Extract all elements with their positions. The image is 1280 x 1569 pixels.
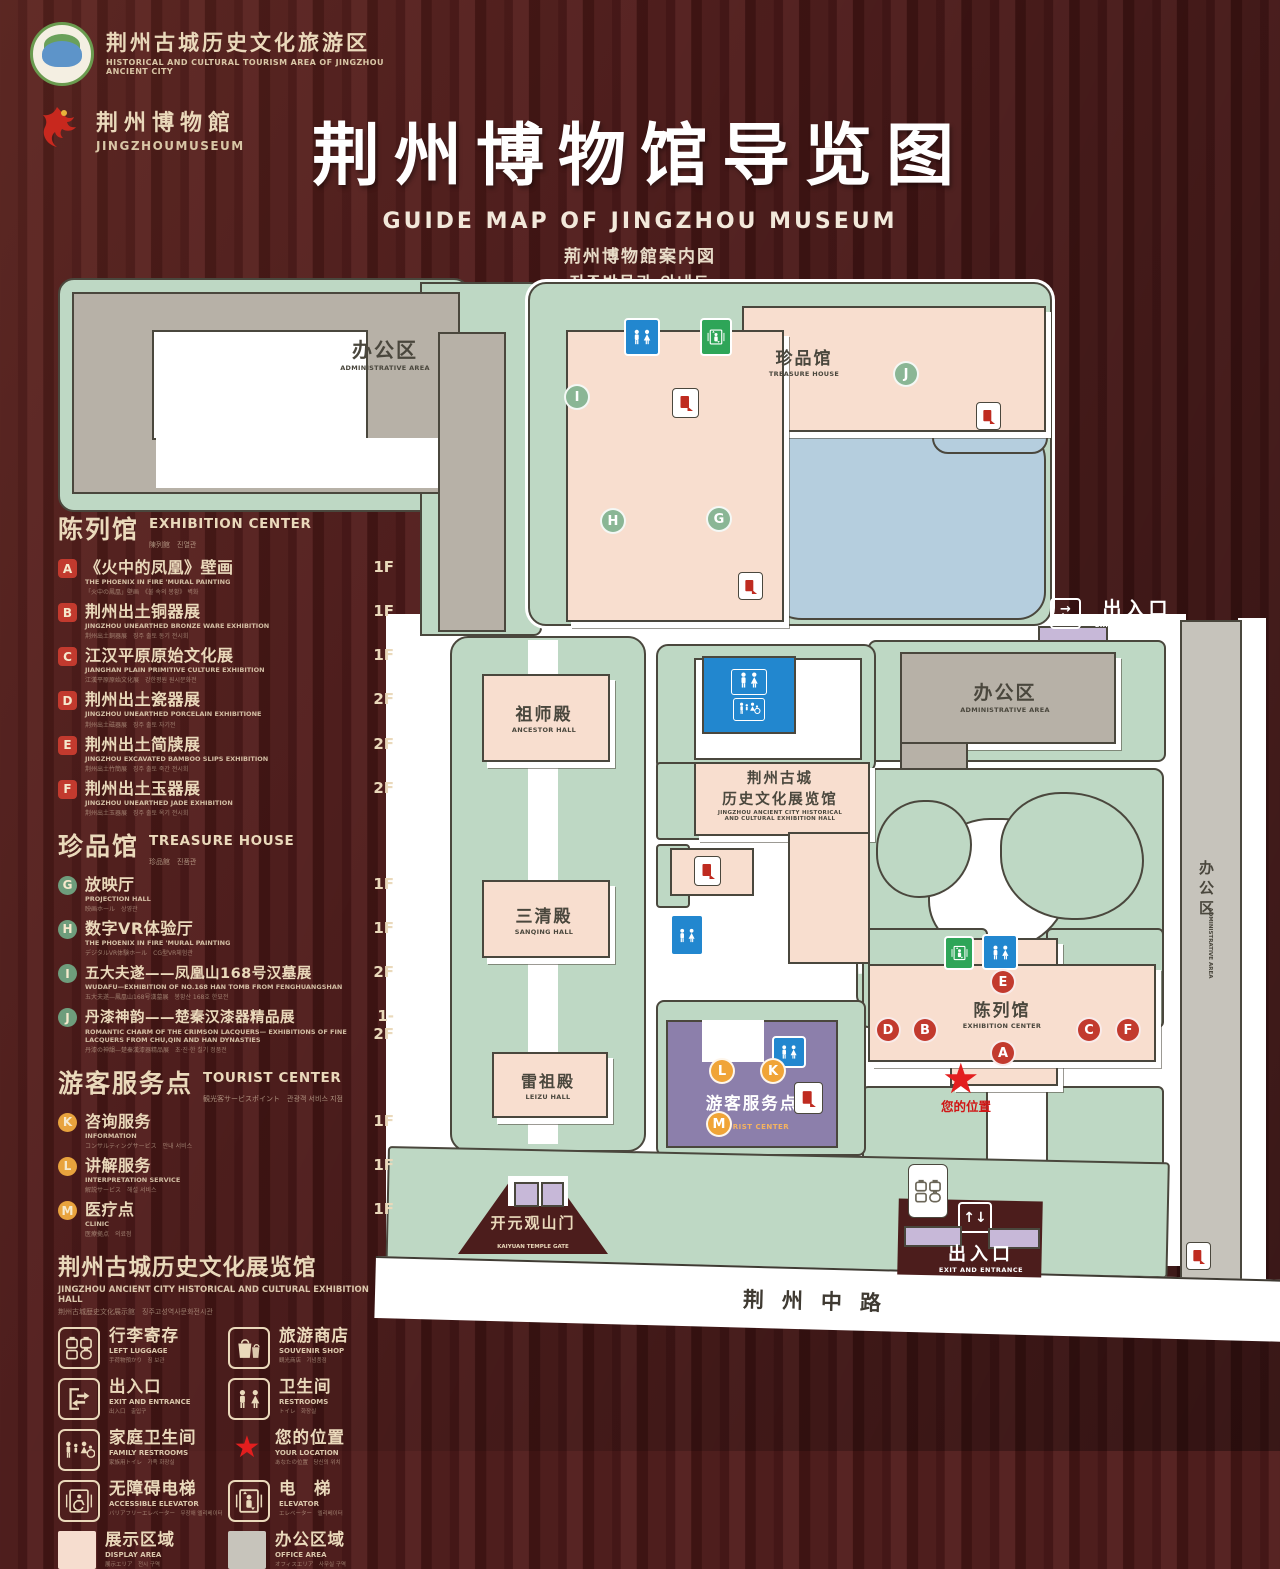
floor-k: 1F — [360, 1112, 394, 1130]
legend-item-l[interactable]: L讲解服务INTERPRETATION SERVICE解説サービス 해설 서비스… — [58, 1156, 394, 1194]
badge-c: C — [58, 647, 77, 666]
legend-tourist-title-en: TOURIST CENTER — [203, 1070, 341, 1086]
plot-exhibition-se — [1046, 1086, 1164, 1172]
map-marker-i[interactable]: I — [564, 384, 590, 410]
badge-l: L — [58, 1157, 77, 1176]
page-title-ja: 荊州博物館案内図 — [0, 242, 1280, 267]
tourism-area-logo-title: 荆州古城历史文化旅游区 — [106, 32, 390, 55]
restroom-building[interactable] — [702, 656, 796, 734]
entrance-icon-south: ↑↓ — [958, 1202, 992, 1233]
exit-entrance-icon — [58, 1378, 100, 1420]
map-marker-m[interactable]: M — [706, 1111, 732, 1137]
badge-i: I — [58, 964, 77, 983]
elevator-icon — [228, 1480, 270, 1522]
exit-icon-northeast: →← — [1050, 598, 1081, 629]
family-restrooms-icon — [58, 1429, 100, 1471]
badge-g: G — [58, 876, 77, 895]
legend-item-e[interactable]: E荆州出土简牍展JINGZHOU EXCAVATED BAMBOO SLIPS … — [58, 735, 394, 773]
page-title: 荆州博物馆导览图 — [0, 100, 1280, 199]
legend-treasure-title-en: TREASURE HOUSE — [149, 833, 294, 849]
building-admin-northwest-wing[interactable] — [438, 332, 506, 632]
label-exhibition-center: 陈列馆 EXHIBITION CENTER — [950, 996, 1054, 1030]
gate-block-east — [541, 1182, 564, 1207]
floor-c: 1F — [360, 646, 394, 664]
restroom-icon-exhibition — [982, 934, 1018, 970]
map-marker-l[interactable]: L — [709, 1058, 735, 1084]
legend-treasure-title: 珍品馆 — [58, 827, 139, 863]
legend-section-exhibition-header: 陈列馆 EXHIBITION CENTER陳列館 진열관 — [58, 510, 394, 551]
souvenir-shop-icon — [228, 1327, 270, 1369]
elevator-icon-treasure — [700, 318, 732, 356]
legend-restrooms: 卫生间RESTROOMSトイレ 화장실 — [228, 1378, 394, 1420]
floor-g: 1F — [360, 875, 394, 893]
pond-treasure-house — [762, 426, 1046, 620]
accessible-elevator-icon — [58, 1480, 100, 1522]
label-exit-south: 出入口 EXIT AND ENTRANCE — [926, 1240, 1036, 1274]
tourism-area-logo-row: 荆州古城历史文化旅游区 HISTORICAL AND CULTURAL TOUR… — [30, 22, 390, 86]
escalator-icon-history-hall — [694, 856, 721, 886]
legend-item-f[interactable]: F荆州出土玉器展JINGZHOU UNEARTHED JADE EXHIBITI… — [58, 779, 394, 817]
legend-left-luggage: 行李寄存LEFT LUGGAGE手荷物預かり 짐 보관 — [58, 1327, 224, 1369]
legend-office-area: 办公区域OFFICE AREAオフィスエリア 사무실 구역 — [228, 1531, 394, 1569]
legend-section-treasure-header: 珍品馆 TREASURE HOUSE珍品館 진품관 — [58, 827, 394, 868]
badge-b: B — [58, 603, 77, 622]
legend-item-m[interactable]: M医疗点CLINIC医療拠点 의료점1F — [58, 1200, 394, 1238]
label-ancestor-hall: 祖师殿 ANCESTOR HALL — [482, 700, 606, 734]
map-marker-a[interactable]: A — [990, 1040, 1016, 1066]
legend-exit-entrance: 出入口EXIT AND ENTRANCE出入口 출입구 — [58, 1378, 224, 1420]
legend-tourist-title: 游客服务点 — [58, 1064, 193, 1100]
floor-j: 1-2F — [360, 1007, 394, 1043]
floor-b: 1F — [360, 602, 394, 620]
map-marker-b[interactable]: B — [912, 1017, 938, 1043]
legend-item-d[interactable]: D荆州出土瓷器展JINGZHOU UNEARTHED PORCELAIN EXH… — [58, 690, 394, 728]
label-admin-strip-en: ADMINISTRATIVE AREA — [1207, 898, 1213, 988]
legend-item-i[interactable]: I五大夫遂——凤凰山168号汉墓展WUDAFU—EXHIBITION OF NO… — [58, 963, 394, 1001]
tourism-area-logo-icon — [30, 22, 94, 86]
legend-item-k[interactable]: K咨询服务INFORMATIONコンサルティングサービス 안내 서비스1F — [58, 1112, 394, 1150]
legend-exhibition-title-en: EXHIBITION CENTER — [149, 516, 311, 532]
map-marker-k[interactable]: K — [760, 1058, 786, 1084]
legend-elevator: 电 梯ELEVATORエレベーター 엘리베이터 — [228, 1480, 394, 1522]
floor-i: 2F — [360, 963, 394, 981]
gate-block-west — [514, 1182, 539, 1207]
floor-d: 2F — [360, 690, 394, 708]
building-history-hall-wing[interactable] — [788, 832, 870, 964]
map-marker-h[interactable]: H — [600, 508, 626, 534]
legend-treasure-title-sub: 珍品館 진품관 — [149, 858, 196, 866]
badge-a: A — [58, 559, 77, 578]
restrooms-icon — [228, 1378, 270, 1420]
restroom-icon-middle — [670, 914, 704, 956]
label-road: 荆州中路 — [743, 1284, 900, 1318]
left-luggage-icon — [58, 1327, 100, 1369]
badge-k: K — [58, 1113, 77, 1132]
floor-m: 1F — [360, 1200, 394, 1218]
display-area-swatch — [58, 1531, 96, 1569]
legend-your-location: ★您的位置YOUR LOCATIONあなたの位置 당신의 위치 — [228, 1429, 394, 1471]
page-title-en: GUIDE MAP OF JINGZHOU MUSEUM — [0, 209, 1280, 234]
legend-facilities-grid: 行李寄存LEFT LUGGAGE手荷物預かり 짐 보관 旅游商店SOUVENIR… — [58, 1327, 394, 1569]
legend-item-g[interactable]: G放映厅PROJECTION HALL映画ホール 상영관1F — [58, 875, 394, 913]
escalator-icon-strip — [1186, 1242, 1211, 1270]
legend-panel: 陈列馆 EXHIBITION CENTER陳列館 진열관 A《火中的凤凰》壁画T… — [58, 500, 394, 1569]
legend-item-b[interactable]: B荆州出土铜器展JINGZHOU UNEARTHED BRONZE WARE E… — [58, 602, 394, 640]
legend-history-hall-note: 荆州古城历史文化展览馆 JINGZHOU ANCIENT CITY HISTOR… — [58, 1250, 394, 1317]
tourism-area-logo-subtitle: HISTORICAL AND CULTURAL TOURISM AREA OF … — [106, 58, 390, 76]
label-sanqing-hall: 三清殿 SANQING HALL — [482, 902, 606, 936]
courtyard-admin-open — [156, 438, 454, 488]
escalator-icon-treasure-1 — [672, 388, 699, 418]
map-marker-f[interactable]: F — [1115, 1017, 1141, 1043]
badge-h: H — [58, 920, 77, 939]
map-marker-j[interactable]: J — [893, 361, 919, 387]
your-location-star-icon: ★ — [228, 1429, 266, 1467]
legend-display-area: 展示区域DISPLAY AREA展示エリア 전시 구역 — [58, 1531, 224, 1569]
legend-item-j[interactable]: J丹漆神韵——楚秦汉漆器精品展ROMANTIC CHARM OF THE CRI… — [58, 1007, 394, 1053]
badge-f: F — [58, 780, 77, 799]
legend-tourist-title-sub: 観光客サービスポイント 관광객 서비스 지점 — [203, 1095, 343, 1103]
floor-a: 1F — [360, 558, 394, 576]
legend-accessible-elevator: 无障碍电梯ACCESSIBLE ELEVATORバリアフリーエレベーター 무장애… — [58, 1480, 224, 1522]
label-treasure-house: 珍品馆 TREASURE HOUSE — [754, 344, 854, 378]
legend-item-a[interactable]: A《火中的凤凰》壁画THE PHOENIX IN FIRE 'MURAL PAI… — [58, 558, 394, 596]
path-east-sliver — [1238, 618, 1266, 1290]
escalator-icon-treasure-3 — [738, 572, 763, 600]
legend-family-restrooms: 家庭卫生间FAMILY RESTROOMS家族用トイレ 가족 화장실 — [58, 1429, 224, 1471]
garden-bed-east — [1000, 792, 1144, 920]
your-location-label: 您的位置 — [926, 1096, 1006, 1115]
restroom-icon-treasure — [624, 318, 660, 356]
legend-section-tourist-header: 游客服务点 TOURIST CENTER観光客サービスポイント 관광객 서비스 … — [58, 1064, 394, 1105]
legend-exhibition-title: 陈列馆 — [58, 510, 139, 546]
badge-e: E — [58, 736, 77, 755]
floor-l: 1F — [360, 1156, 394, 1174]
legend-exhibition-title-sub: 陳列館 진열관 — [149, 541, 196, 549]
legend-souvenir-shop: 旅游商店SOUVENIR SHOP観光商店 기념품점 — [228, 1327, 394, 1369]
elevator-icon-exhibition — [944, 936, 974, 970]
luggage-icon-tourist — [794, 1082, 823, 1114]
map-marker-c[interactable]: C — [1076, 1017, 1102, 1043]
map-marker-g[interactable]: G — [706, 506, 732, 532]
map-marker-d[interactable]: D — [875, 1017, 901, 1043]
legend-item-h[interactable]: H数字VR体验厅THE PHOENIX IN FIRE 'MURAL PAINT… — [58, 919, 394, 957]
badge-m: M — [58, 1201, 77, 1220]
label-admin-east: 办公区 ADMINISTRATIVE AREA — [940, 678, 1070, 714]
tourist-center-notch — [702, 1020, 764, 1062]
floor-h: 1F — [360, 919, 394, 937]
page-header: 荆州博物馆导览图 GUIDE MAP OF JINGZHOU MUSEUM 荊州… — [0, 100, 1280, 293]
badge-j: J — [58, 1008, 77, 1027]
escalator-icon-treasure-2 — [976, 402, 1001, 430]
label-admin-northwest: 办公区 ADMINISTRATIVE AREA — [310, 334, 460, 372]
luggage-icon-south — [908, 1164, 948, 1218]
label-history-hall: 荆州古城 历史文化展览馆 JINGZHOU ANCIENT CITY HISTO… — [698, 767, 862, 822]
label-exit-northeast: 出入口 EXIT AND ENTRANCE — [1082, 594, 1192, 629]
legend-item-c[interactable]: C江汉平原原始文化展JIANGHAN PLAIN PRIMITIVE CULTU… — [58, 646, 394, 684]
floor-f: 2F — [360, 779, 394, 797]
badge-d: D — [58, 691, 77, 710]
label-leizu-hall: 雷祖殿 LEIZU HALL — [492, 1068, 604, 1101]
your-location-star: ★ — [942, 1058, 980, 1100]
map-marker-e[interactable]: E — [990, 969, 1016, 995]
floor-e: 2F — [360, 735, 394, 753]
office-area-swatch — [228, 1531, 266, 1569]
label-kaiyuan-gate: 开元观山门 KAIYUAN TEMPLE GATE — [466, 1212, 600, 1252]
